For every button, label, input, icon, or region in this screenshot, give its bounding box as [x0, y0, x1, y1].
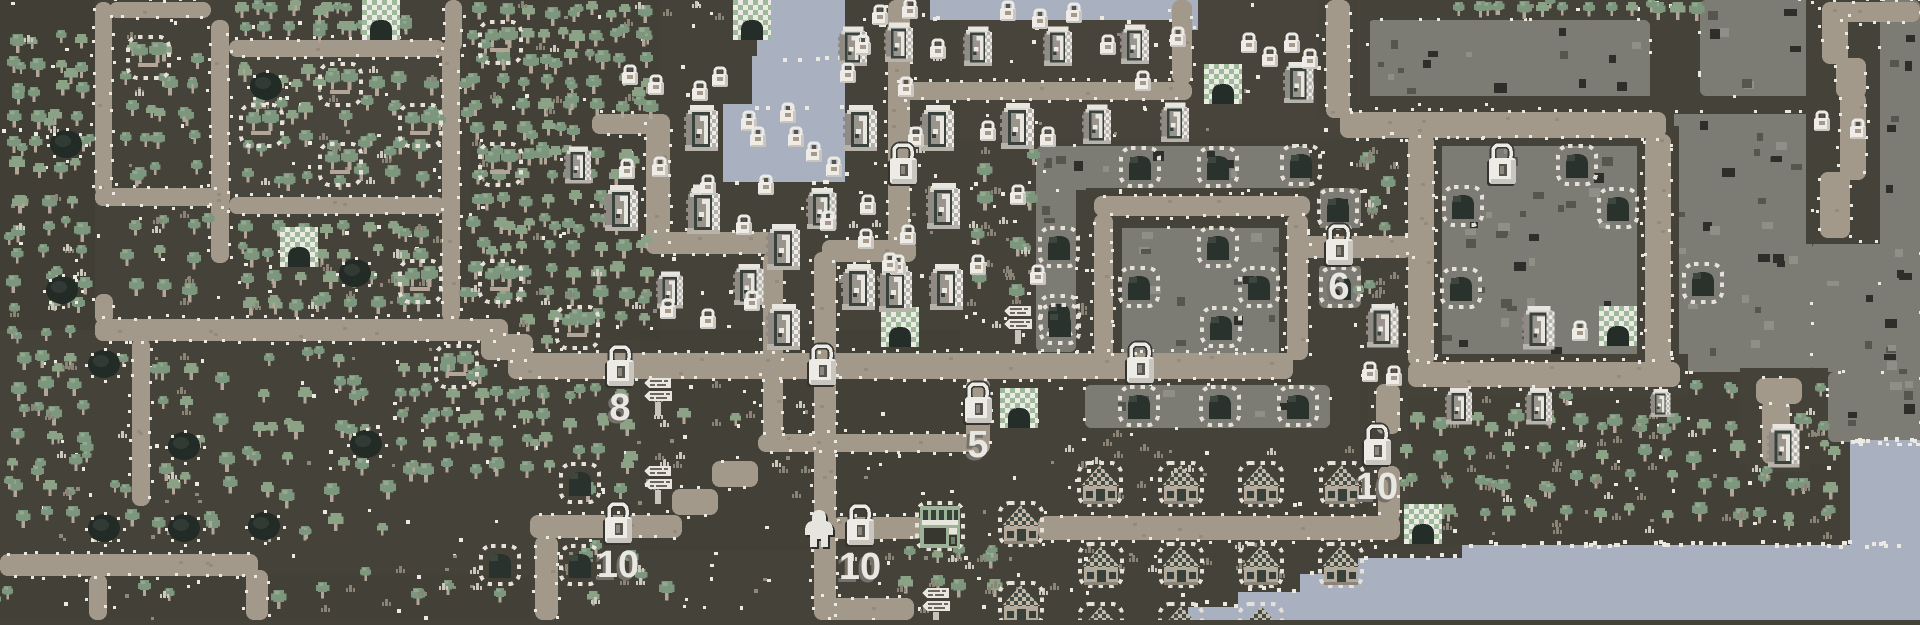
svg-text:5: 5 [967, 424, 988, 466]
svg-text:10: 10 [597, 544, 639, 586]
svg-text:6: 6 [1328, 266, 1349, 308]
svg-text:10: 10 [1356, 466, 1398, 508]
svg-text:10: 10 [839, 546, 881, 588]
svg-text:8: 8 [609, 387, 630, 429]
